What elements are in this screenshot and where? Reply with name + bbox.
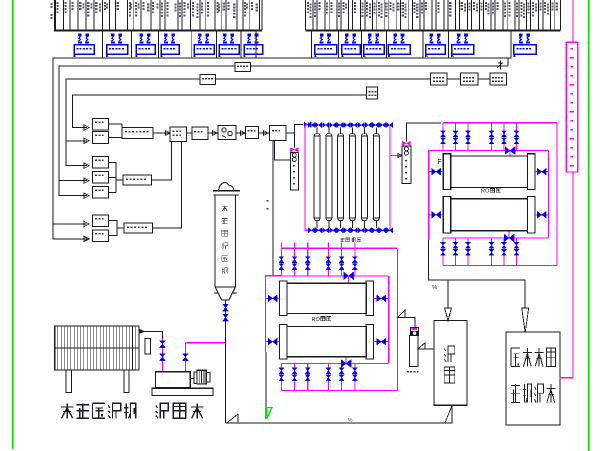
svg-text:RO: RO (312, 317, 321, 323)
svg-text:F: F (438, 159, 442, 166)
svg-text:RO: RO (481, 189, 490, 195)
svg-text:℅: ℅ (432, 284, 438, 291)
svg-text:℅: ℅ (348, 418, 353, 424)
